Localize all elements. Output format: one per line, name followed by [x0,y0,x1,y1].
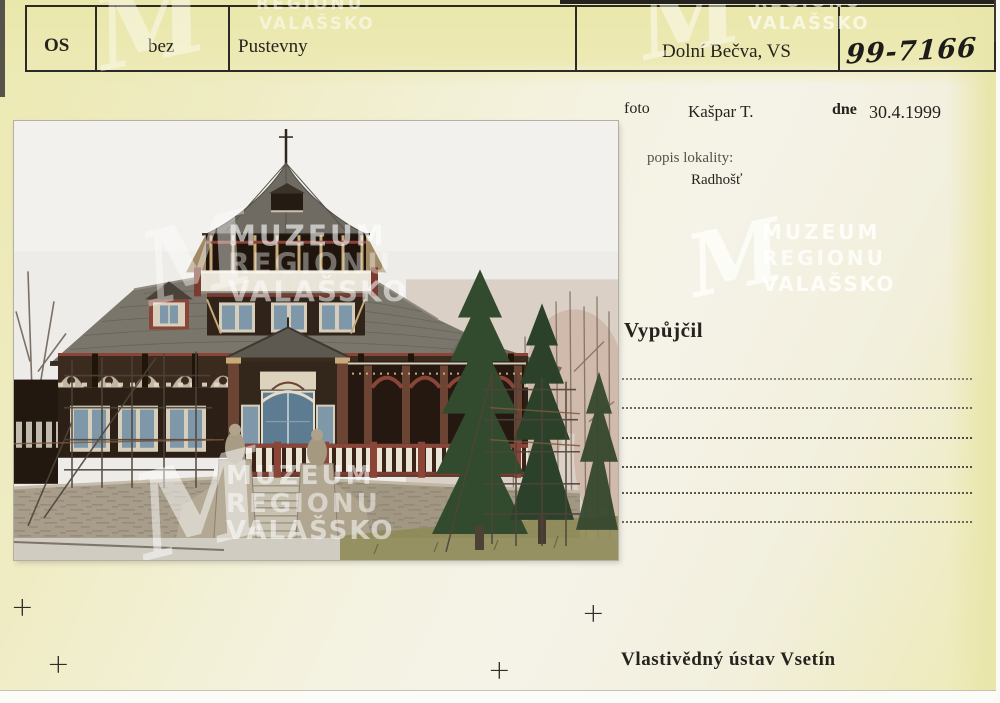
table-vline-3 [228,5,230,72]
table-bottom-border [25,70,996,72]
institution-name: Vlastivědný ústav Vsetín [621,649,836,671]
ruled-line-2 [622,407,972,409]
photograph-libusin-chalet: MUZEUM REGIONU VALAŠSKO MUZEUM REGIONU V… [14,121,618,560]
locality-label: popis lokality: [647,150,733,167]
card-right-tint [948,0,996,690]
foto-label: foto [624,100,650,118]
scan-edge-top [560,0,1000,4]
loan-heading: Vypůjčil [624,318,703,343]
header-cell-negative: bez [148,36,174,58]
scan-edge-left [0,0,5,97]
ruled-line-1 [622,378,972,380]
scan-edge-right [996,0,1000,703]
photographer-name: Kašpar T. [688,102,753,122]
header-cell-type-code: OS [44,35,69,57]
scanned-catalog-card: OS bez Pustevny Dolní Bečva, VS 99-7166 … [0,0,1000,703]
registration-mark-2: + [47,651,70,678]
table-vline-4 [575,5,577,72]
table-vline-2 [95,5,97,72]
table-vline-1 [25,5,27,72]
registration-mark-3: + [582,600,605,627]
table-vline-5 [838,5,840,72]
header-cell-title: Pustevny [238,36,308,58]
header-cell-location: Dolní Bečva, VS [662,41,791,63]
registration-mark-4: + [488,657,511,684]
dne-label: dne [832,101,857,119]
registration-mark-1: + [11,594,34,621]
photo-illustration: MUZEUM REGIONU VALAŠSKO MUZEUM REGIONU V… [14,121,618,560]
table-top-border [25,5,996,7]
ruled-line-6 [622,521,972,523]
photo-date: 30.4.1999 [869,102,941,123]
ruled-line-4 [622,466,972,468]
locality-value: Radhošť [691,172,742,189]
scan-edge-bottom [0,690,1000,703]
ruled-line-3 [622,437,972,439]
ruled-line-5 [622,492,972,494]
